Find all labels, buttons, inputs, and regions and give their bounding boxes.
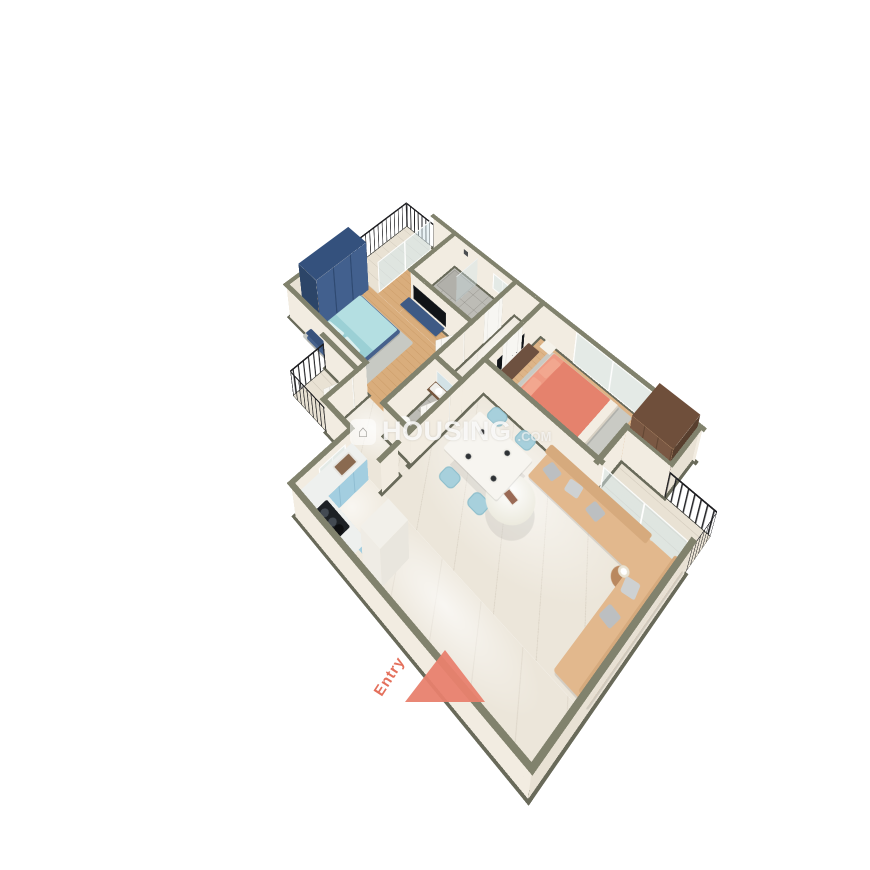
floorplan-3d: [151, 227, 738, 864]
entry-arrow-icon: [405, 650, 485, 702]
watermark-suffix: .COM: [518, 429, 552, 444]
house-icon: ⌂: [350, 419, 376, 445]
watermark-text: HOUSING: [382, 416, 512, 447]
watermark: ⌂ HOUSING .COM: [350, 416, 551, 447]
floorplan-render: ⌂ HOUSING .COM Entry: [0, 0, 870, 870]
